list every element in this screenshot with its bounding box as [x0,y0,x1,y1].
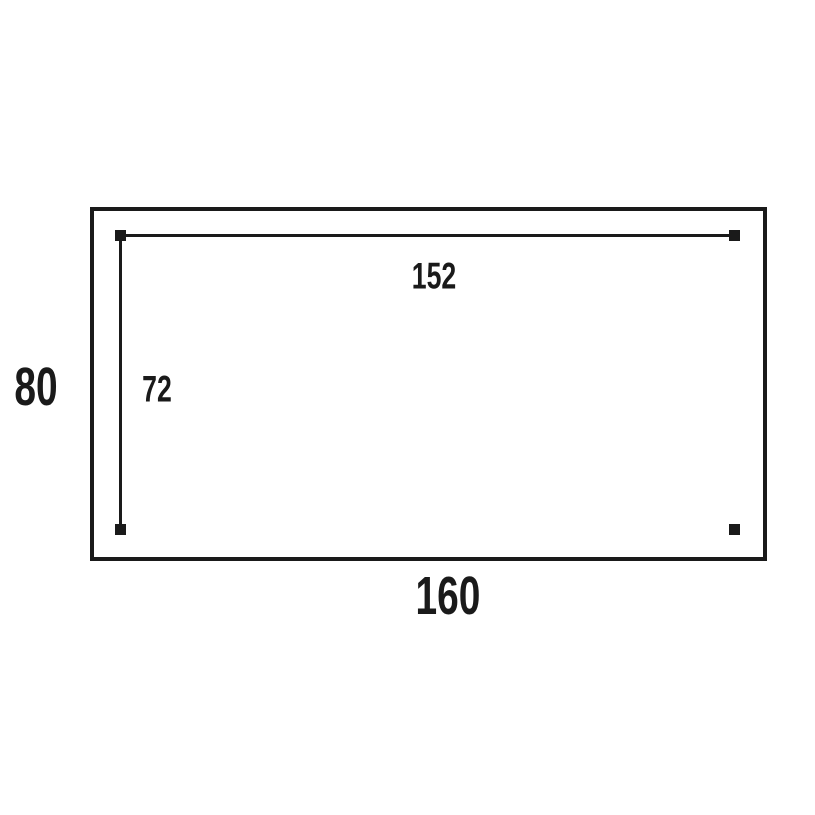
outer-height-label: 80 [14,360,57,414]
inner-width-dimension-line [121,234,735,237]
corner-marker-top-right [729,230,740,241]
corner-marker-bottom-left [115,524,126,535]
dimension-diagram: 80 160 152 72 [0,0,815,815]
inner-height-label: 72 [142,371,172,408]
inner-width-label: 152 [412,258,456,295]
corner-marker-bottom-right [729,524,740,535]
inner-height-dimension-line [119,236,122,530]
outer-width-label: 160 [416,569,481,623]
corner-marker-top-left [115,230,126,241]
